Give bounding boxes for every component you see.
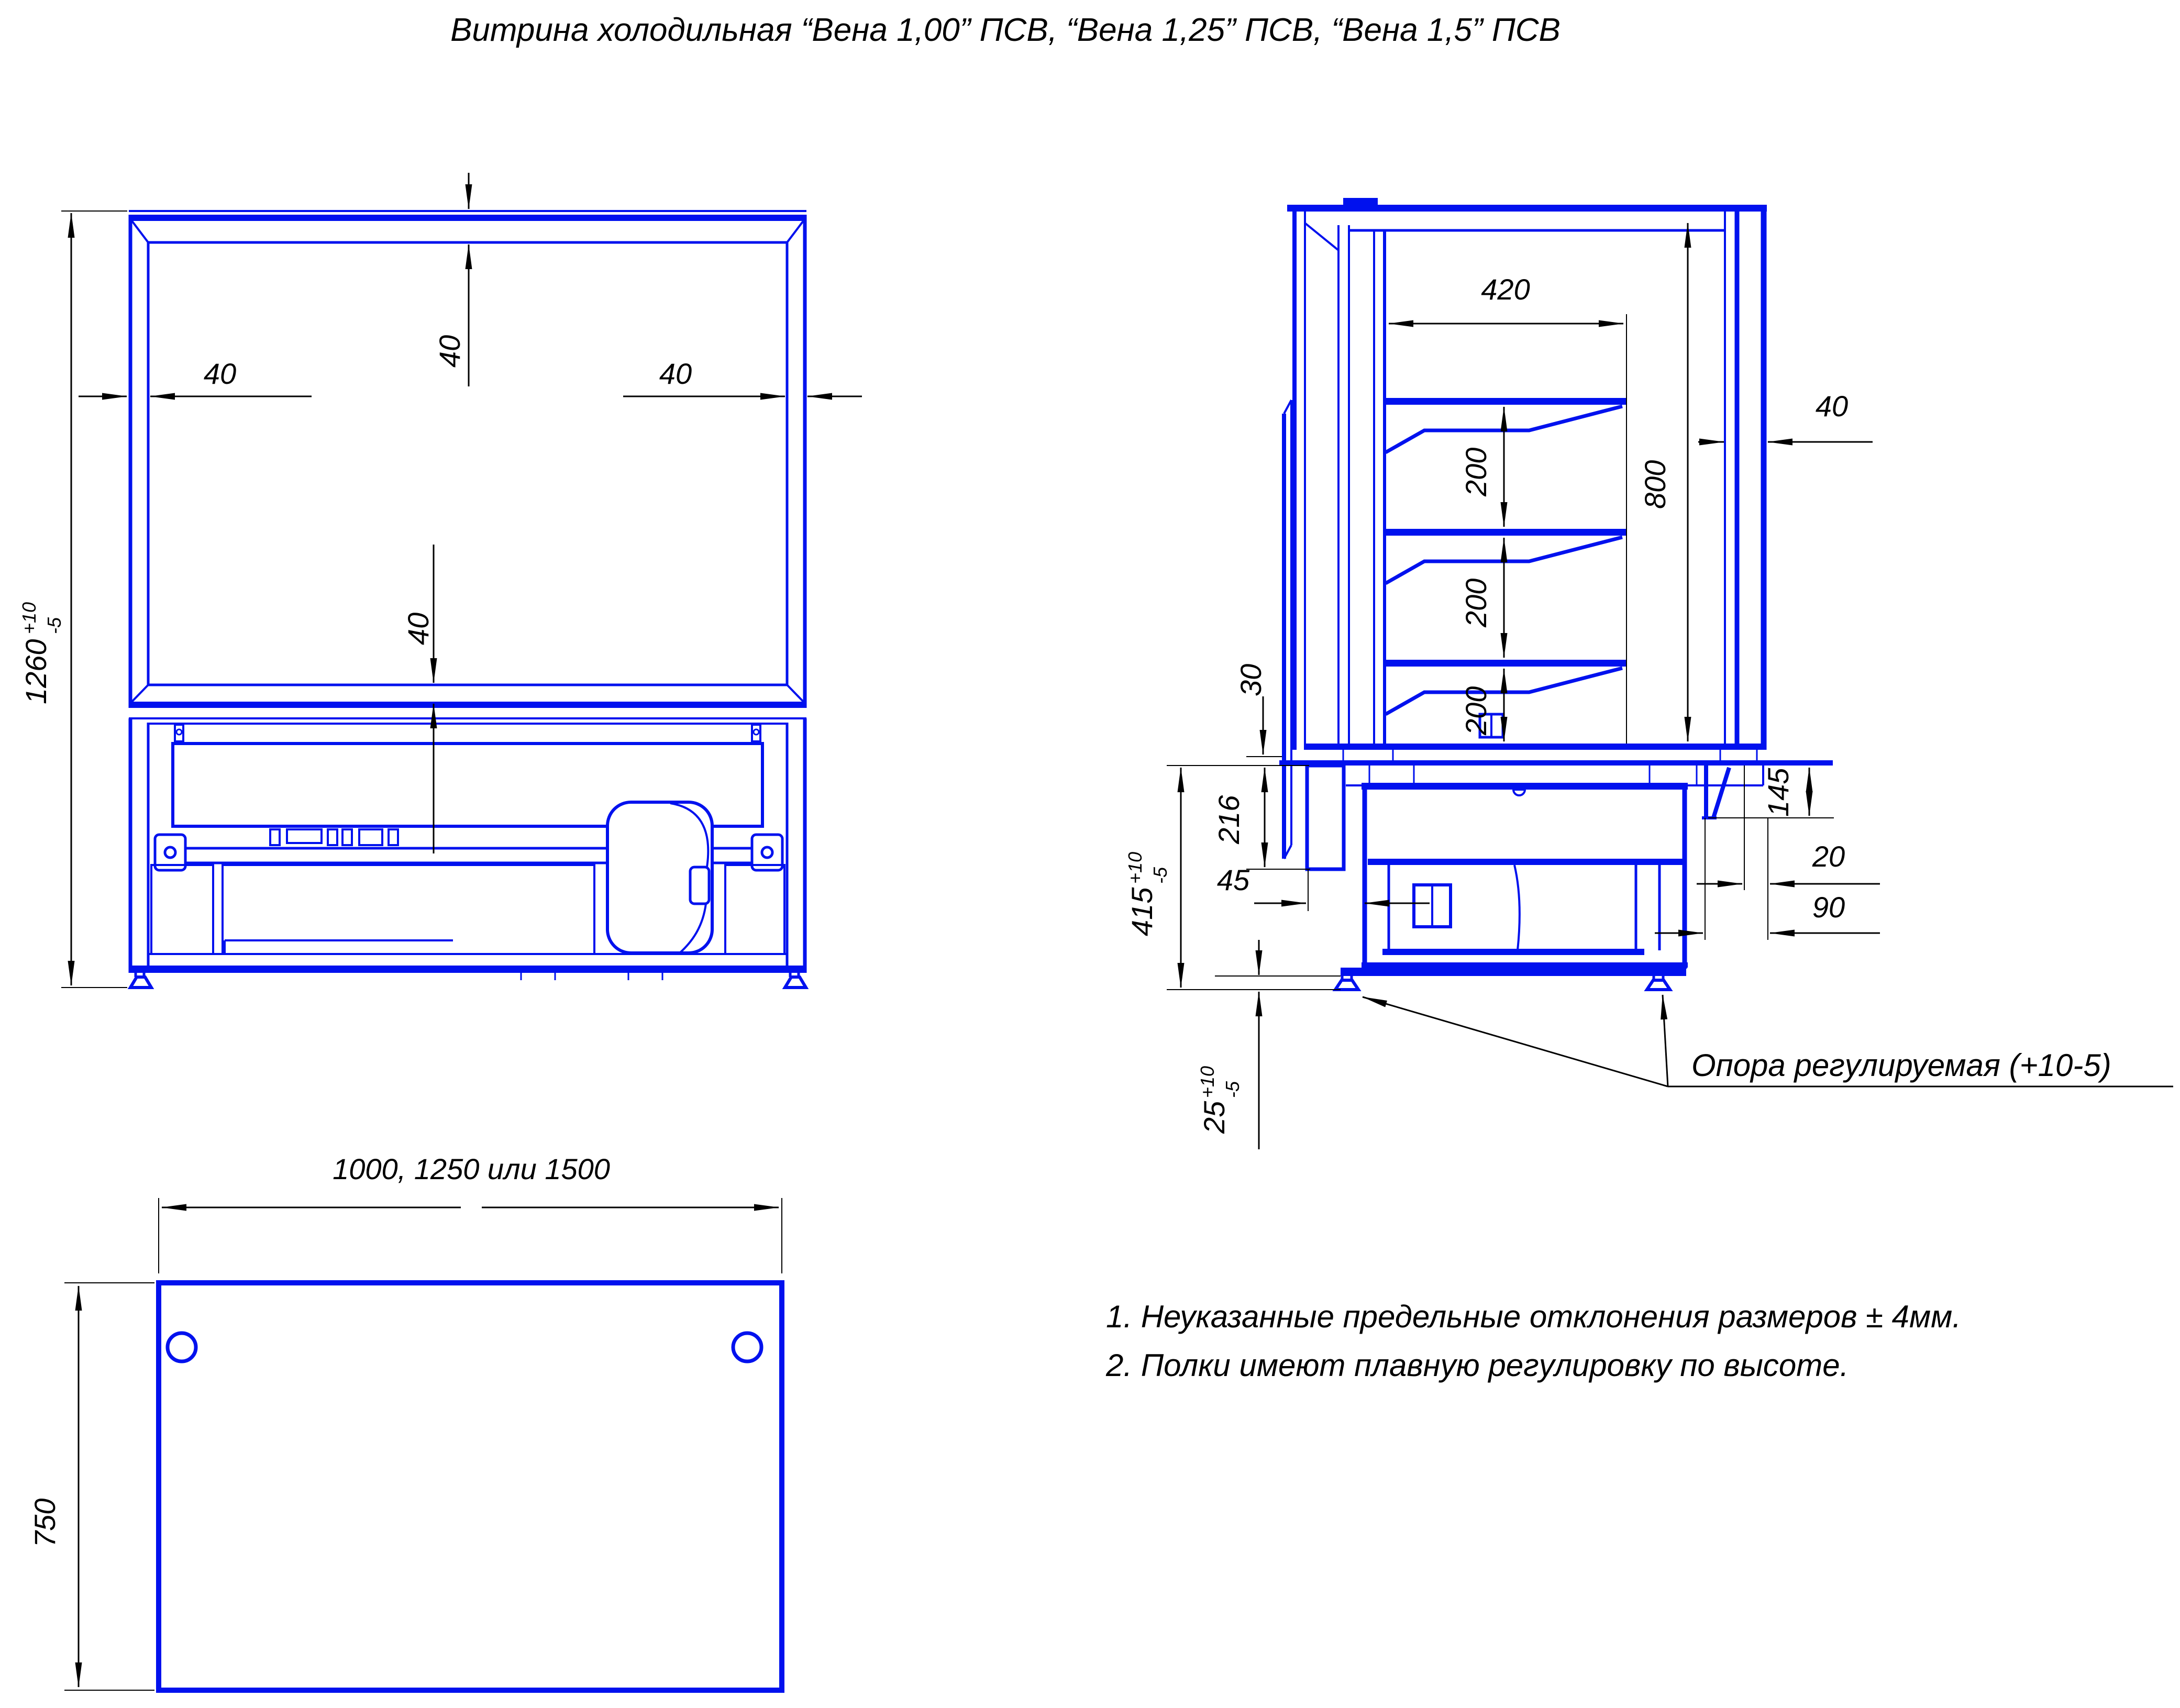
leader-text: Опора регулируемая (+10-5) — [1691, 1048, 2111, 1083]
svg-text:40: 40 — [433, 335, 466, 368]
dim-gap2: 200 — [1459, 579, 1492, 628]
svg-text:750: 750 — [28, 1499, 61, 1547]
dim-clearance: 45 — [1217, 863, 1250, 896]
svg-text:25: 25 — [1198, 1101, 1231, 1134]
side-panel-216 — [1307, 766, 1344, 869]
dim-shelf-width: 420 — [1481, 273, 1530, 306]
svg-text:145: 145 — [1762, 768, 1795, 817]
drawing-title: Витрина холодильная “Вена 1,00” ПСВ, “Ве… — [450, 12, 1561, 48]
svg-text:200: 200 — [1459, 448, 1492, 497]
dim-plan-width: 1000, 1250 или 1500 — [333, 1152, 610, 1185]
drawing-page: Витрина холодильная “Вена 1,00” ПСВ, “Ве… — [0, 0, 2180, 1708]
svg-text:200: 200 — [1459, 579, 1492, 628]
dim-front-bottom: 40 — [402, 613, 435, 645]
dim-panel: 216 — [1212, 795, 1245, 845]
dim-side-glass: 40 — [1816, 390, 1848, 423]
dim-gap1: 200 — [1459, 448, 1492, 497]
svg-text:+10: +10 — [1124, 852, 1146, 884]
svg-text:30: 30 — [1234, 664, 1267, 696]
dim-front-left: 40 — [204, 357, 236, 390]
svg-text:200: 200 — [1459, 686, 1492, 736]
svg-text:1260: 1260 — [19, 639, 52, 704]
dim-gap3: 200 — [1459, 686, 1492, 736]
svg-text:+10: +10 — [18, 602, 40, 634]
dim-counter: 30 — [1234, 664, 1267, 696]
svg-text:-5: -5 — [1222, 1081, 1243, 1098]
svg-text:800: 800 — [1639, 460, 1672, 509]
svg-text:40: 40 — [402, 613, 435, 645]
svg-text:+10: +10 — [1197, 1066, 1218, 1098]
note-2: 2. Полки имеют плавную регулировку по вы… — [1105, 1348, 1849, 1383]
svg-text:216: 216 — [1212, 795, 1245, 845]
dim-offset-large: 90 — [1812, 891, 1845, 924]
dim-skirt: 145 — [1762, 768, 1795, 817]
svg-text:-5: -5 — [1149, 867, 1171, 884]
dim-front-right: 40 — [659, 357, 692, 390]
dim-offset-small: 20 — [1812, 840, 1845, 873]
svg-text:415: 415 — [1125, 887, 1158, 936]
note-1: 1. Неуказанные предельные отклонения раз… — [1106, 1299, 1961, 1334]
dim-plan-depth: 750 — [28, 1499, 61, 1547]
dim-front-top: 40 — [433, 335, 466, 368]
svg-text:-5: -5 — [43, 617, 65, 634]
capacitor — [690, 867, 709, 904]
dim-interior-height: 800 — [1639, 460, 1672, 509]
technical-drawing: Витрина холодильная “Вена 1,00” ПСВ, “Ве… — [0, 0, 2180, 1708]
